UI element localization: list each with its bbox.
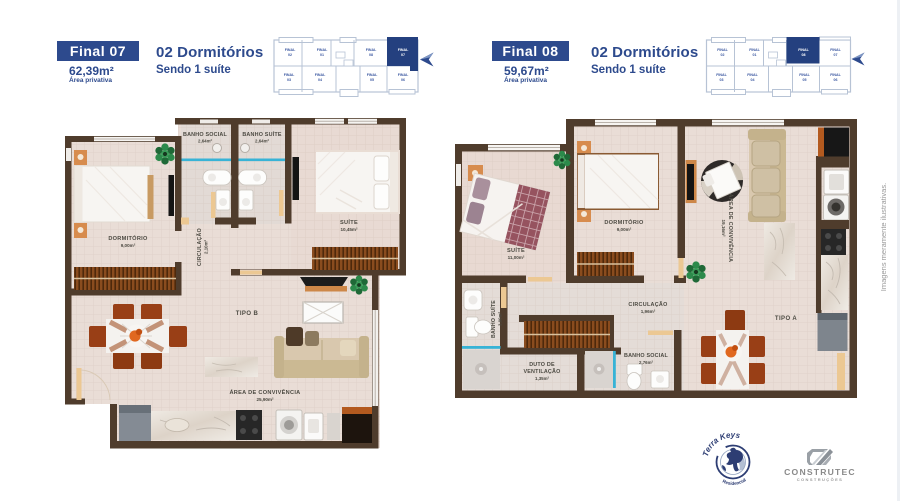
svg-text:BANHO SOCIAL: BANHO SOCIAL bbox=[183, 132, 228, 138]
svg-text:FINAL: FINAL bbox=[749, 48, 760, 52]
svg-text:FINAL: FINAL bbox=[285, 48, 296, 52]
svg-text:BANHO SUÍTE: BANHO SUÍTE bbox=[489, 300, 497, 338]
svg-text:06: 06 bbox=[401, 78, 405, 82]
svg-text:9,00m²: 9,00m² bbox=[617, 227, 632, 232]
svg-text:ÁREA DE CONVIVÊNCIA: ÁREA DE CONVIVÊNCIA bbox=[229, 388, 300, 396]
svg-text:2,64m²: 2,64m² bbox=[198, 139, 212, 144]
svg-text:11,00m²: 11,00m² bbox=[508, 255, 525, 260]
svg-text:CIRCULAÇÃO: CIRCULAÇÃO bbox=[196, 228, 203, 266]
svg-text:Imagens meramente ilustrativas: Imagens meramente ilustrativas. bbox=[879, 183, 888, 291]
svg-text:07: 07 bbox=[834, 53, 838, 57]
svg-text:9,00m²: 9,00m² bbox=[121, 243, 136, 248]
svg-text:FINAL: FINAL bbox=[284, 73, 295, 77]
svg-text:DUTO DE: DUTO DE bbox=[529, 362, 555, 368]
svg-text:FINAL: FINAL bbox=[830, 73, 841, 77]
svg-text:CONSTRUTEC: CONSTRUTEC bbox=[784, 467, 856, 477]
svg-text:FINAL: FINAL bbox=[716, 73, 727, 77]
svg-text:06: 06 bbox=[834, 78, 838, 82]
svg-text:DORMITÓRIO: DORMITÓRIO bbox=[108, 234, 148, 242]
svg-text:04: 04 bbox=[318, 78, 322, 82]
svg-text:BANHO SUÍTE: BANHO SUÍTE bbox=[242, 130, 282, 138]
svg-text:FINAL: FINAL bbox=[799, 73, 810, 77]
svg-text:05: 05 bbox=[370, 78, 374, 82]
svg-text:TIPO A: TIPO A bbox=[775, 316, 797, 322]
svg-text:FINAL: FINAL bbox=[315, 73, 326, 77]
svg-text:08: 08 bbox=[802, 53, 806, 57]
svg-text:02: 02 bbox=[288, 53, 292, 57]
svg-text:04: 04 bbox=[751, 78, 755, 82]
svg-text:FINAL: FINAL bbox=[317, 48, 328, 52]
svg-text:TIPO B: TIPO B bbox=[236, 311, 259, 317]
svg-text:VENTILAÇÃO: VENTILAÇÃO bbox=[523, 368, 560, 375]
svg-text:FINAL: FINAL bbox=[747, 73, 758, 77]
svg-text:SUÍTE: SUÍTE bbox=[507, 246, 525, 254]
svg-text:01: 01 bbox=[753, 53, 757, 57]
svg-text:FINAL: FINAL bbox=[398, 73, 409, 77]
svg-text:DORMITÓRIO: DORMITÓRIO bbox=[604, 218, 644, 226]
svg-text:2,76m²: 2,76m² bbox=[639, 360, 653, 365]
svg-text:FINAL: FINAL bbox=[830, 48, 841, 52]
svg-text:FINAL: FINAL bbox=[367, 73, 378, 77]
svg-text:08: 08 bbox=[369, 53, 373, 57]
svg-text:2,10m²: 2,10m² bbox=[204, 240, 209, 254]
svg-text:3,00m²: 3,00m² bbox=[498, 312, 503, 326]
svg-text:07: 07 bbox=[401, 53, 405, 57]
svg-text:FINAL: FINAL bbox=[717, 48, 728, 52]
svg-text:FINAL: FINAL bbox=[366, 48, 377, 52]
svg-text:02: 02 bbox=[721, 53, 725, 57]
svg-text:FINAL: FINAL bbox=[398, 48, 409, 52]
svg-text:BANHO SOCIAL: BANHO SOCIAL bbox=[624, 353, 669, 359]
svg-text:1,35m²: 1,35m² bbox=[535, 376, 549, 381]
svg-text:05: 05 bbox=[803, 78, 807, 82]
svg-text:2,64m²: 2,64m² bbox=[255, 139, 269, 144]
svg-text:10,45m²: 10,45m² bbox=[340, 227, 358, 232]
svg-text:ÁREA DE CONVIVÊNCIA: ÁREA DE CONVIVÊNCIA bbox=[727, 194, 735, 263]
svg-text:03: 03 bbox=[287, 78, 291, 82]
svg-text:1,96m²: 1,96m² bbox=[641, 309, 656, 314]
svg-text:FINAL: FINAL bbox=[798, 48, 809, 52]
svg-text:25,90m²: 25,90m² bbox=[256, 397, 274, 402]
svg-text:SUÍTE: SUÍTE bbox=[340, 218, 358, 226]
svg-text:01: 01 bbox=[320, 53, 324, 57]
svg-text:CONSTRUÇÕES: CONSTRUÇÕES bbox=[797, 477, 844, 482]
svg-text:CIRCULAÇÃO: CIRCULAÇÃO bbox=[628, 301, 667, 308]
svg-text:19,16m²: 19,16m² bbox=[721, 219, 726, 237]
svg-text:03: 03 bbox=[720, 78, 724, 82]
